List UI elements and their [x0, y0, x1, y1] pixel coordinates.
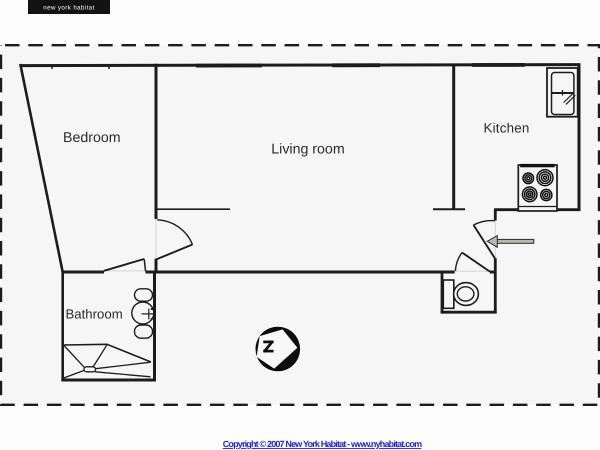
svg-text:new york habitat: new york habitat	[43, 5, 94, 12]
svg-text:Copyright © 2007 New York Habi: Copyright © 2007 New York Habitat - www.…	[223, 439, 422, 449]
svg-text:Kitchen: Kitchen	[484, 121, 530, 136]
svg-text:Bedroom: Bedroom	[63, 130, 121, 146]
svg-text:Living room: Living room	[271, 142, 344, 158]
svg-text:Bathroom: Bathroom	[66, 307, 123, 322]
